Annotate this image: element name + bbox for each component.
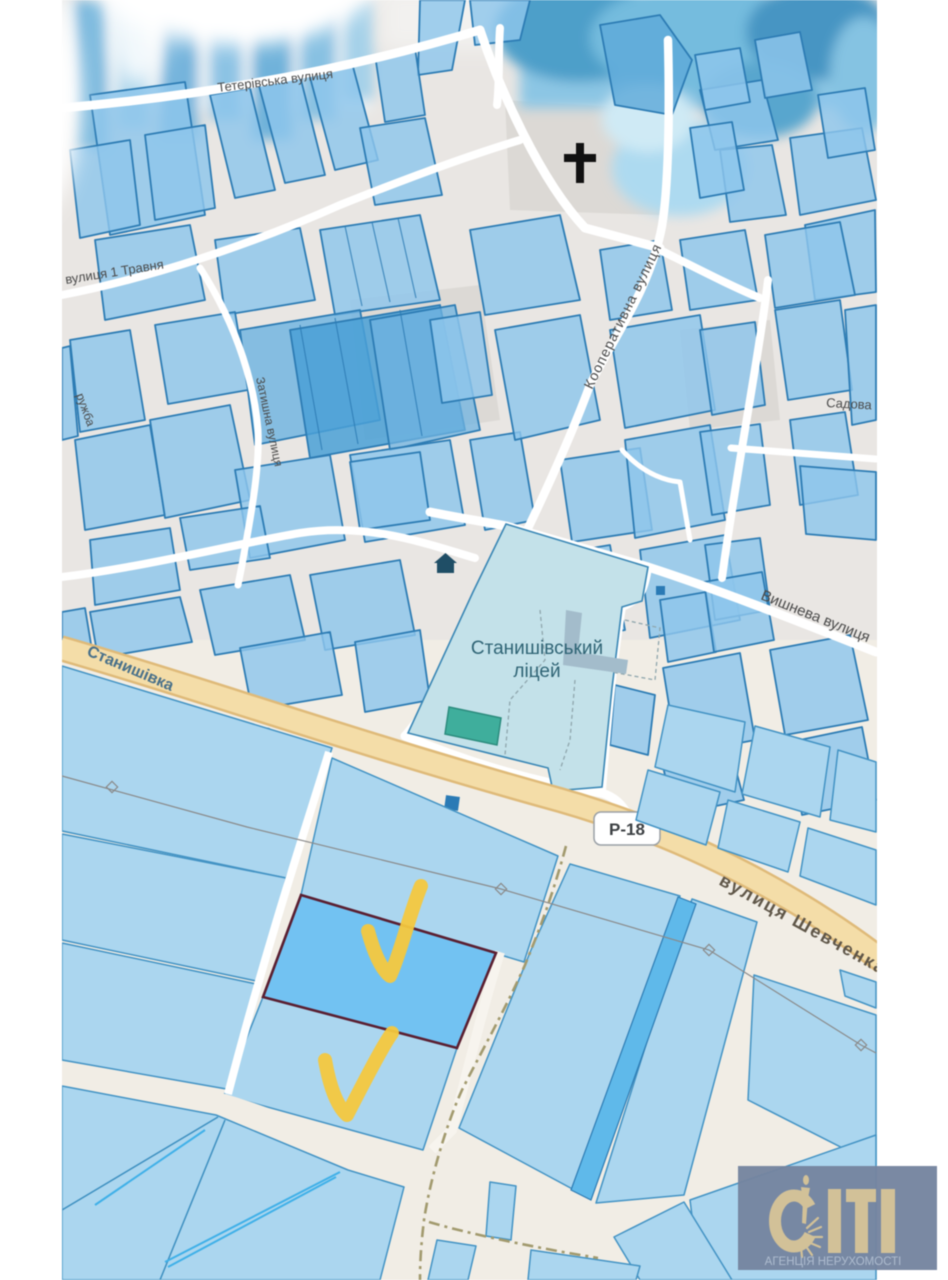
svg-text:Станишівський: Станишівський <box>471 638 603 659</box>
svg-text:ліцей: ліцей <box>513 661 560 682</box>
svg-text:Р-18: Р-18 <box>609 820 645 839</box>
svg-text:Садова: Садова <box>826 395 873 412</box>
svg-text:АГЕНЦІЯ НЕРУХОМОСТІ: АГЕНЦІЯ НЕРУХОМОСТІ <box>765 1256 902 1268</box>
